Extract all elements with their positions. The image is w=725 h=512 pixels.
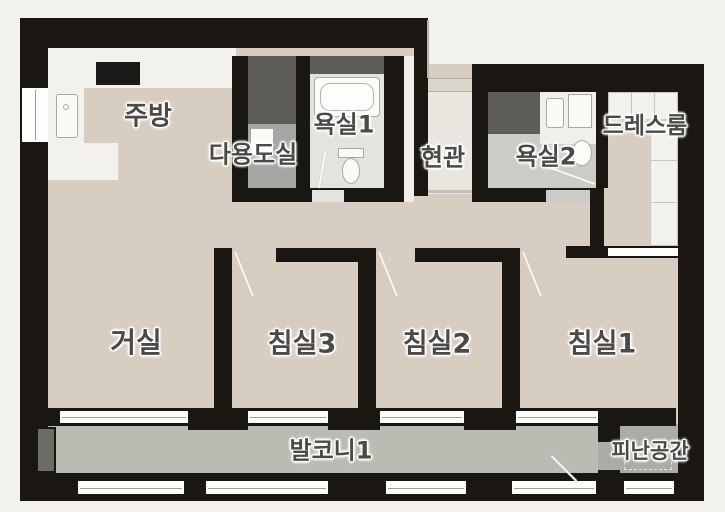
wall-entry-right	[472, 64, 488, 202]
wall-utility-left	[232, 56, 248, 202]
bath1-door-gap	[312, 190, 344, 202]
label-living: 거실	[110, 321, 162, 361]
window-left-wall	[22, 88, 48, 142]
window-refuge-exterior	[624, 481, 674, 494]
wardrobe-right-divider	[651, 160, 677, 161]
wall-pillar-1	[188, 408, 248, 430]
entry-shoe-cabinet	[404, 56, 414, 202]
bg-patch-entry-nook	[428, 14, 488, 64]
entry-step-line	[428, 190, 472, 193]
window-balcony-exterior-3	[386, 481, 466, 494]
wall-bed3-bed2	[358, 248, 376, 408]
label-refuge: 피난공간	[611, 435, 688, 465]
label-bath2: 욕실2	[516, 137, 577, 172]
label-bed3: 침실3	[268, 322, 336, 361]
wall-bath1-right	[384, 56, 404, 202]
duct-above-bath1	[248, 56, 384, 74]
bg-patch-top-right	[488, 14, 725, 64]
window-bed3-balcony	[248, 411, 328, 423]
bath2-door-gap	[546, 190, 590, 202]
label-bath1: 욕실1	[314, 105, 375, 140]
kitchen-sink-drain-icon	[63, 104, 69, 110]
window-living-balcony	[60, 411, 188, 423]
kitchen-counter-top	[48, 48, 236, 88]
window-balcony-exterior-4	[512, 481, 596, 494]
window-balcony-exterior-1	[78, 481, 184, 494]
label-bed1: 침실1	[568, 322, 636, 361]
bath2-sink-icon	[546, 98, 564, 128]
stove-icon	[96, 62, 140, 85]
wall-living-bed3	[214, 248, 232, 408]
duct-above-utility	[248, 74, 296, 124]
floor-plan: 주방 다용도실 욕실1 현관 욕실2 드레스룸 거실 침실3 침실2 침실1 발…	[0, 0, 725, 512]
label-bed2: 침실2	[403, 322, 471, 361]
label-balcony: 발코니1	[290, 431, 373, 466]
window-balcony-exterior-2	[206, 481, 328, 494]
kitchen-counter-corner	[48, 143, 118, 180]
toilet-bowl-icon	[342, 158, 360, 184]
wall-pillar-3	[464, 408, 516, 430]
dress-bed1-slider	[608, 246, 678, 258]
entry-nook-frame-line	[427, 20, 429, 78]
duct-bath2	[488, 92, 540, 134]
wall-block-top	[488, 64, 704, 92]
kitchen-sink-icon	[56, 94, 78, 138]
wall-entry-left	[414, 48, 428, 196]
label-dressroom: 드레스룸	[603, 106, 688, 140]
window-bed1-balcony	[516, 411, 598, 423]
toilet-tank-icon	[338, 148, 364, 158]
balcony-ac-niche	[36, 427, 56, 473]
label-entry: 현관	[421, 138, 465, 173]
bath2-washer-icon	[568, 94, 592, 128]
wardrobe-right-divider	[651, 202, 677, 203]
wall-hall-dress	[590, 188, 604, 252]
wall-top	[20, 18, 428, 48]
wall-pillar-2	[328, 408, 380, 430]
label-utility: 다용도실	[209, 135, 297, 170]
entry-threshold	[428, 78, 472, 92]
label-kitchen: 주방	[124, 96, 172, 133]
wall-bed2-bed1	[502, 248, 520, 408]
window-bed2-balcony	[380, 411, 464, 423]
wall-bed1-topleft	[566, 246, 608, 258]
wall-bath1-left	[296, 56, 310, 202]
